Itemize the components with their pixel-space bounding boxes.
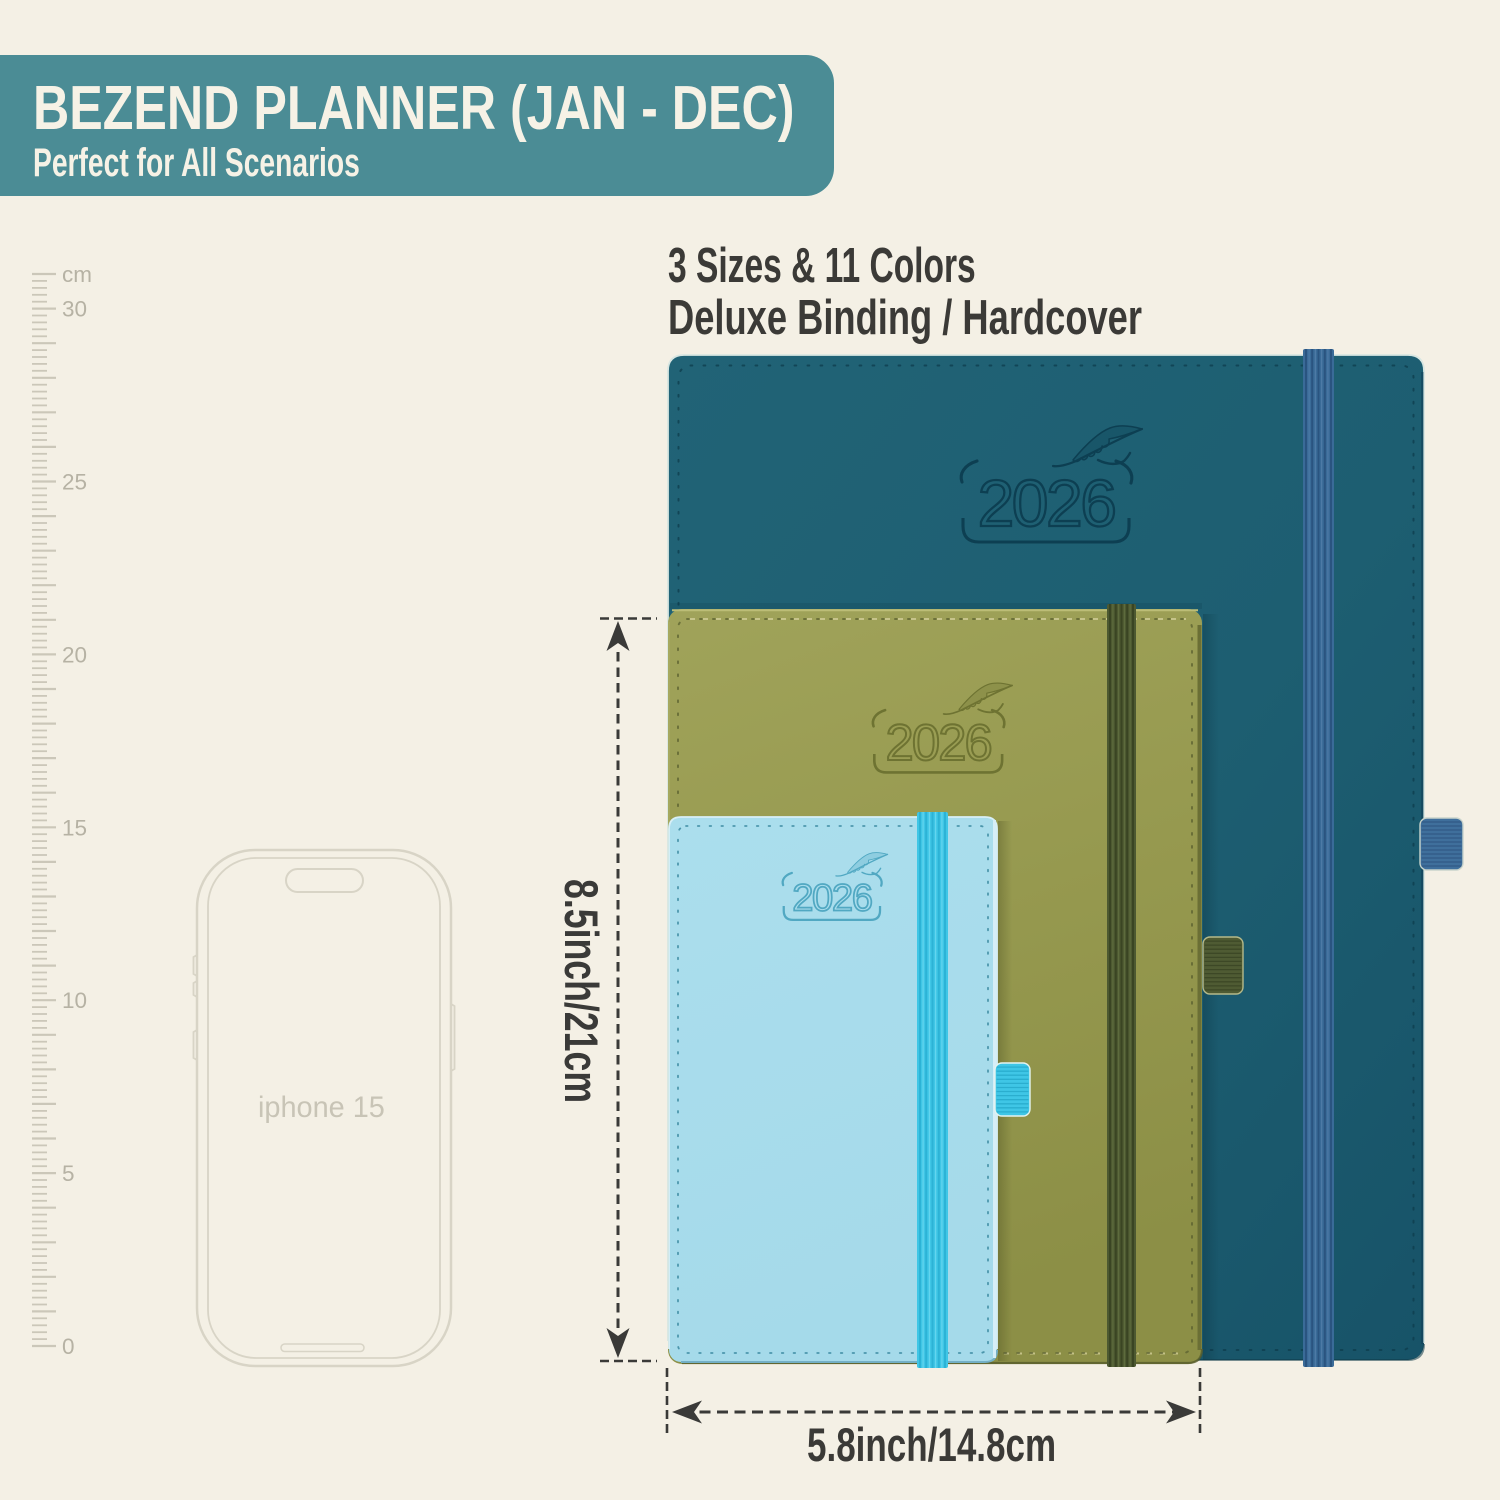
svg-text:5.8inch/14.8cm: 5.8inch/14.8cm [807,1418,1056,1471]
svg-text:25: 25 [62,470,87,495]
svg-text:iphone 15: iphone 15 [258,1091,385,1125]
svg-text:0: 0 [62,1334,75,1359]
svg-text:15: 15 [62,815,87,840]
svg-text:8.5inch/21cm: 8.5inch/21cm [555,879,608,1103]
svg-text:BEZEND PLANNER (JAN - DEC): BEZEND PLANNER (JAN - DEC) [33,73,795,142]
svg-text:2026: 2026 [978,466,1115,540]
svg-text:30: 30 [62,297,87,322]
svg-text:10: 10 [62,988,87,1013]
svg-text:20: 20 [62,642,87,667]
svg-text:cm: cm [62,262,92,287]
svg-text:2026: 2026 [886,714,992,771]
svg-text:5: 5 [62,1161,75,1186]
svg-text:3 Sizes & 11 Colors: 3 Sizes & 11 Colors [668,238,976,293]
svg-text:Deluxe Binding / Hardcover: Deluxe Binding / Hardcover [668,291,1142,346]
svg-text:2026: 2026 [792,877,871,920]
svg-text:Perfect for All Scenarios: Perfect for All Scenarios [33,141,360,185]
